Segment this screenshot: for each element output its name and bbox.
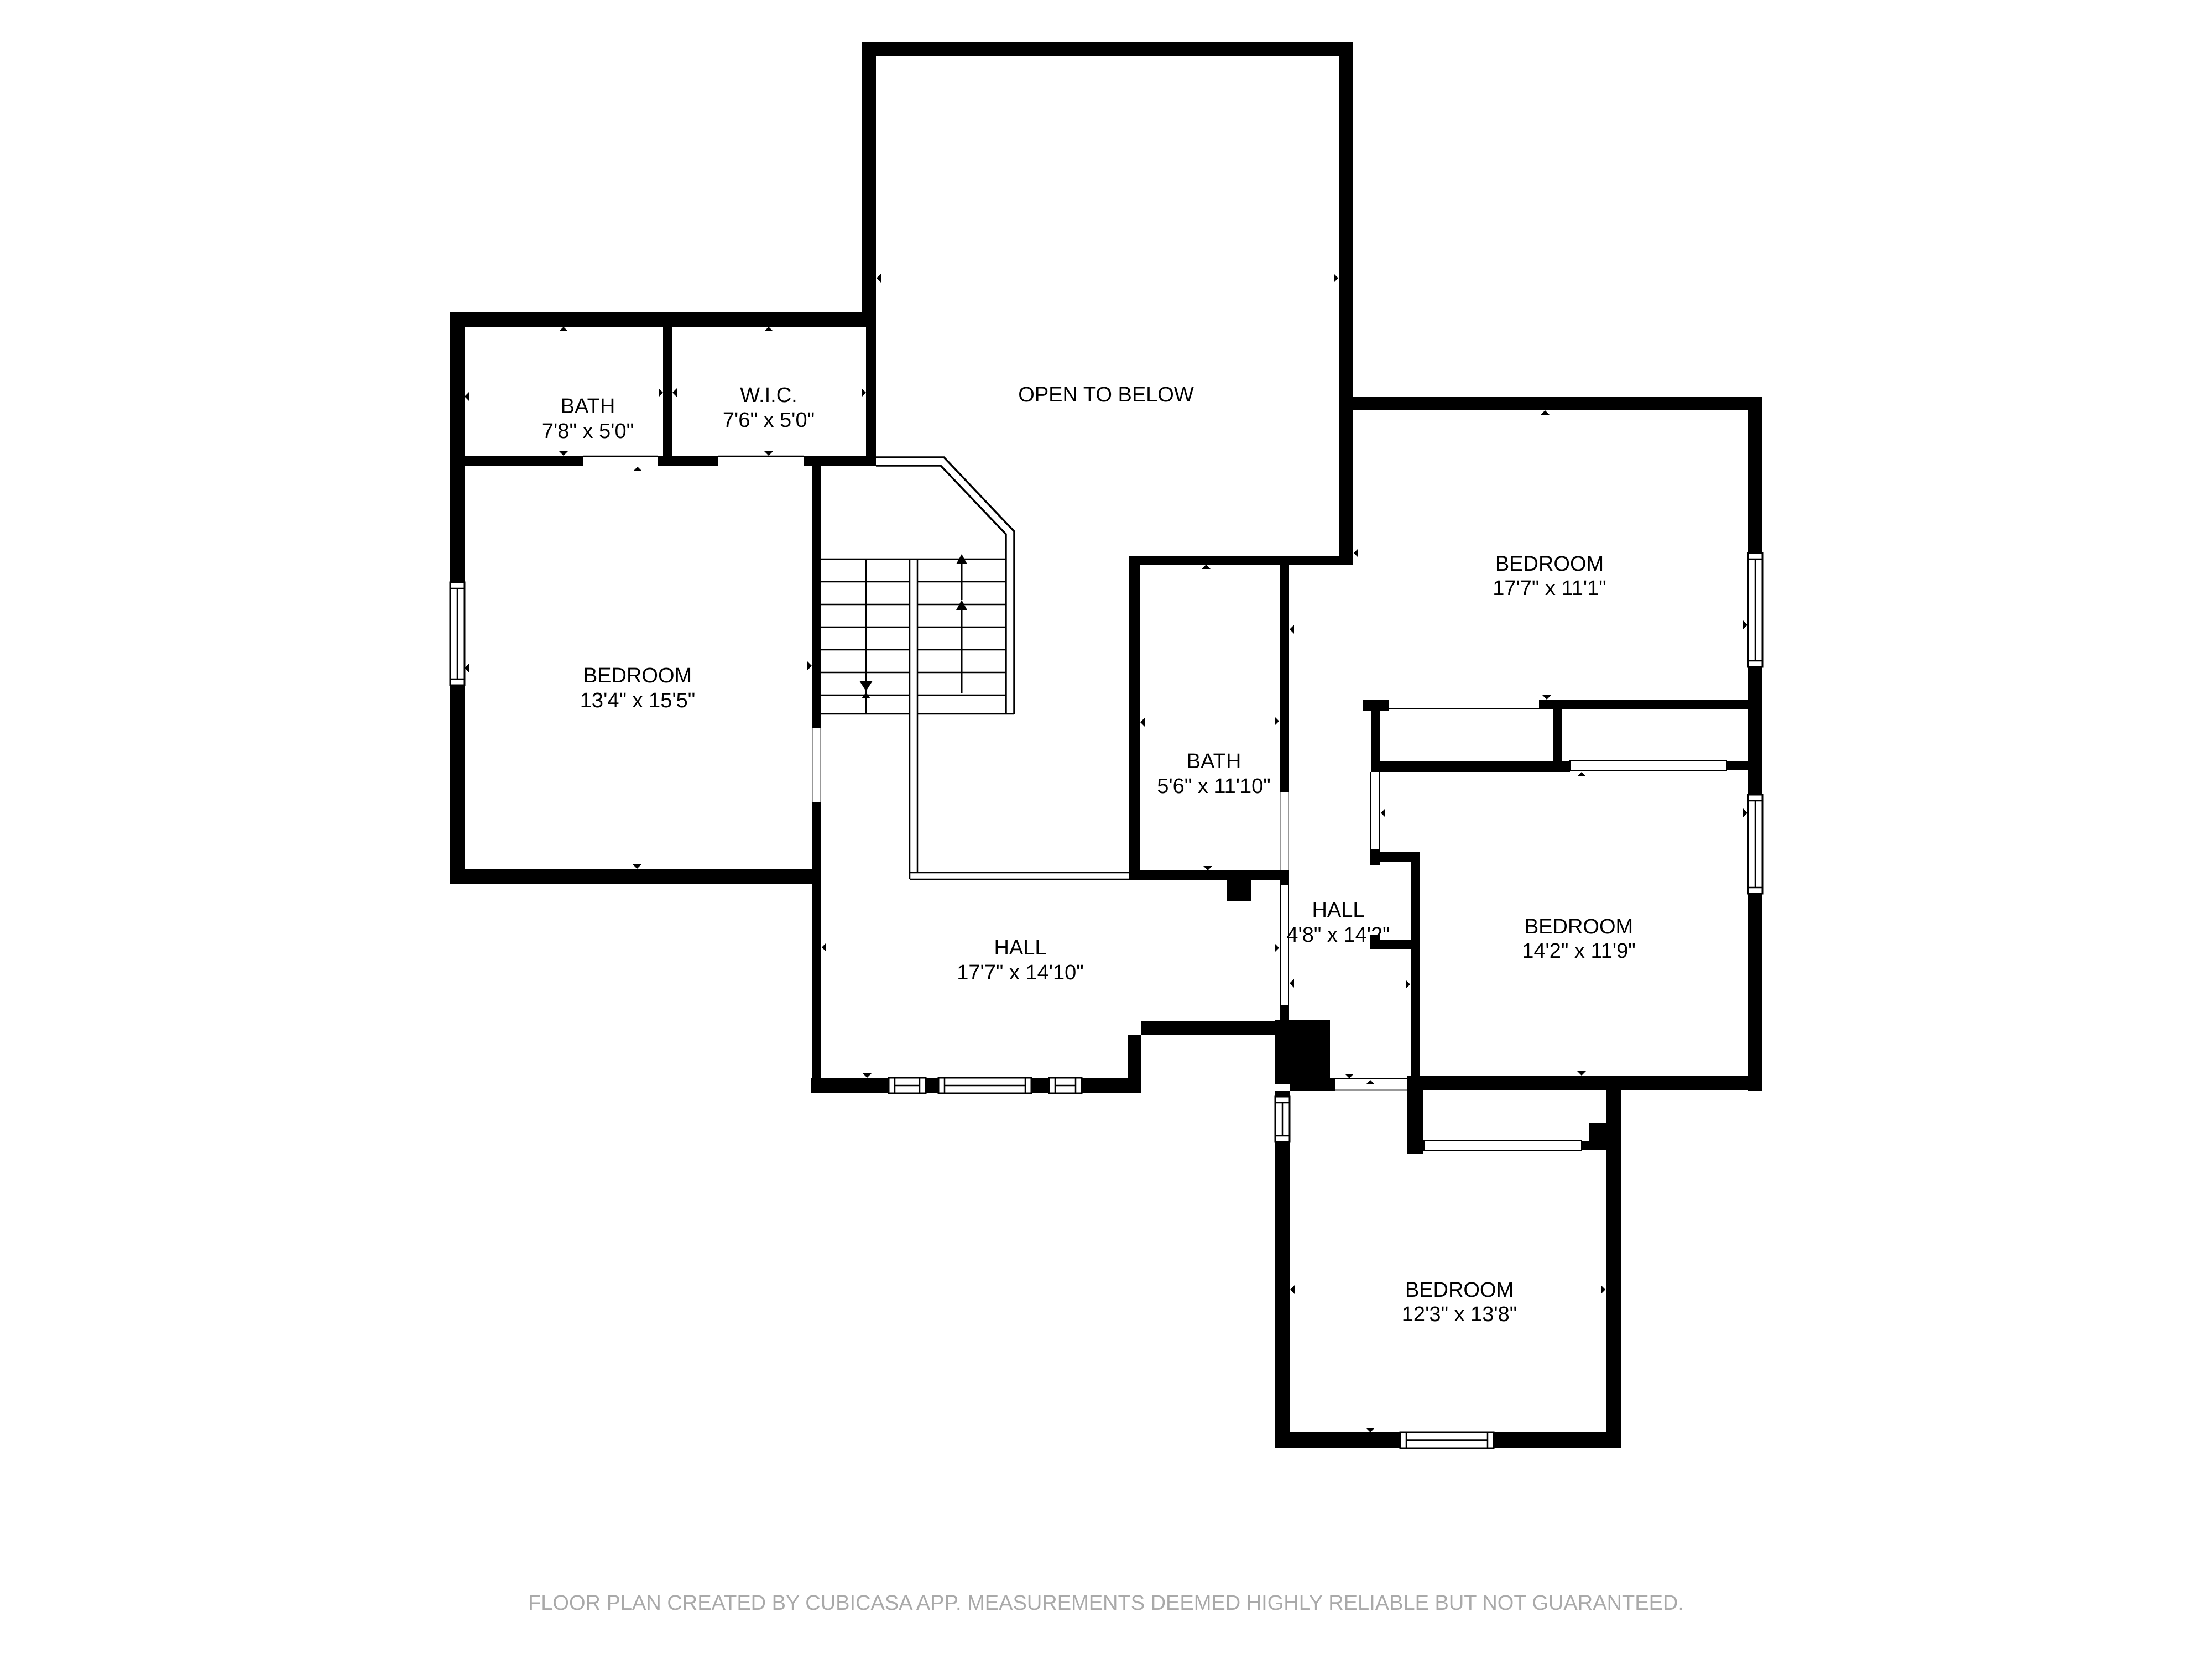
svg-text:OPEN TO BELOW: OPEN TO BELOW <box>1018 383 1194 406</box>
svg-text:BEDROOM: BEDROOM <box>583 664 692 687</box>
svg-text:HALL: HALL <box>994 936 1046 959</box>
svg-text:17'7" x 14'10": 17'7" x 14'10" <box>957 961 1084 984</box>
svg-text:4'8" x 14'2": 4'8" x 14'2" <box>1286 924 1390 947</box>
svg-text:HALL: HALL <box>1312 899 1364 922</box>
svg-text:BATH: BATH <box>1187 750 1241 773</box>
svg-text:BEDROOM: BEDROOM <box>1525 915 1633 938</box>
svg-text:FLOOR PLAN CREATED BY CUBICASA: FLOOR PLAN CREATED BY CUBICASA APP. MEAS… <box>528 1592 1684 1615</box>
svg-text:5'6" x 11'10": 5'6" x 11'10" <box>1157 775 1271 798</box>
svg-text:BEDROOM: BEDROOM <box>1405 1279 1514 1302</box>
svg-text:12'3" x 13'8": 12'3" x 13'8" <box>1402 1303 1517 1326</box>
svg-text:14'2" x 11'9": 14'2" x 11'9" <box>1522 940 1636 963</box>
svg-text:W.I.C.: W.I.C. <box>740 384 797 407</box>
svg-text:7'6" x 5'0": 7'6" x 5'0" <box>723 409 815 432</box>
svg-text:BEDROOM: BEDROOM <box>1495 552 1604 576</box>
svg-text:BATH: BATH <box>561 395 615 418</box>
svg-text:17'7" x 11'1": 17'7" x 11'1" <box>1493 577 1606 600</box>
svg-text:7'8" x 5'0": 7'8" x 5'0" <box>542 420 634 443</box>
svg-text:13'4" x 15'5": 13'4" x 15'5" <box>580 689 695 712</box>
